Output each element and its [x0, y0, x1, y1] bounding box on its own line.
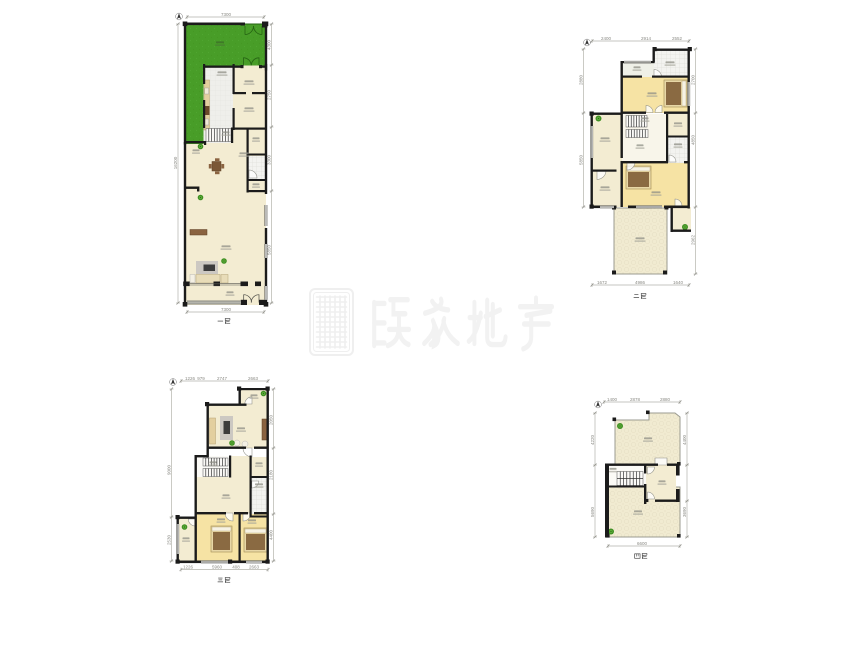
svg-text:2050: 2050: [268, 414, 273, 425]
svg-text:3300: 3300: [266, 154, 271, 165]
svg-text:408: 408: [232, 564, 240, 569]
svg-text:2878: 2878: [630, 397, 641, 402]
svg-text:3690: 3690: [682, 506, 687, 517]
svg-text:1226: 1226: [183, 564, 194, 569]
svg-text:1226: 1226: [185, 376, 196, 381]
svg-text:2400: 2400: [601, 36, 612, 41]
svg-text:1400: 1400: [607, 397, 618, 402]
svg-text:2700: 2700: [690, 74, 695, 85]
svg-text:2530: 2530: [166, 534, 171, 545]
svg-text:2880: 2880: [578, 74, 583, 85]
svg-text:7300: 7300: [221, 12, 232, 17]
svg-text:6600: 6600: [637, 541, 648, 546]
svg-text:4400: 4400: [682, 434, 687, 445]
svg-text:2663: 2663: [248, 376, 259, 381]
svg-text:4400: 4400: [268, 529, 273, 540]
svg-text:4850: 4850: [690, 134, 695, 145]
svg-text:1640: 1640: [673, 280, 684, 285]
svg-text:5850: 5850: [266, 244, 271, 255]
svg-text:9000: 9000: [166, 464, 171, 475]
svg-text:2962: 2962: [690, 234, 695, 245]
svg-text:2750: 2750: [266, 89, 271, 100]
svg-text:2880: 2880: [660, 397, 671, 402]
svg-text:7300: 7300: [221, 307, 232, 312]
svg-text:4220: 4220: [590, 434, 595, 445]
svg-text:2552: 2552: [672, 36, 683, 41]
svg-text:5960: 5960: [212, 564, 223, 569]
svg-text:4300: 4300: [266, 39, 271, 50]
svg-text:5690: 5690: [590, 506, 595, 517]
svg-text:979: 979: [197, 376, 205, 381]
svg-text:1672: 1672: [597, 280, 608, 285]
svg-text:2180: 2180: [268, 469, 273, 480]
svg-text:16200: 16200: [173, 156, 178, 169]
svg-text:2747: 2747: [217, 376, 228, 381]
svg-text:2663: 2663: [249, 564, 260, 569]
svg-text:4986: 4986: [635, 280, 646, 285]
svg-text:2914: 2914: [641, 36, 652, 41]
svg-text:5850: 5850: [578, 154, 583, 165]
